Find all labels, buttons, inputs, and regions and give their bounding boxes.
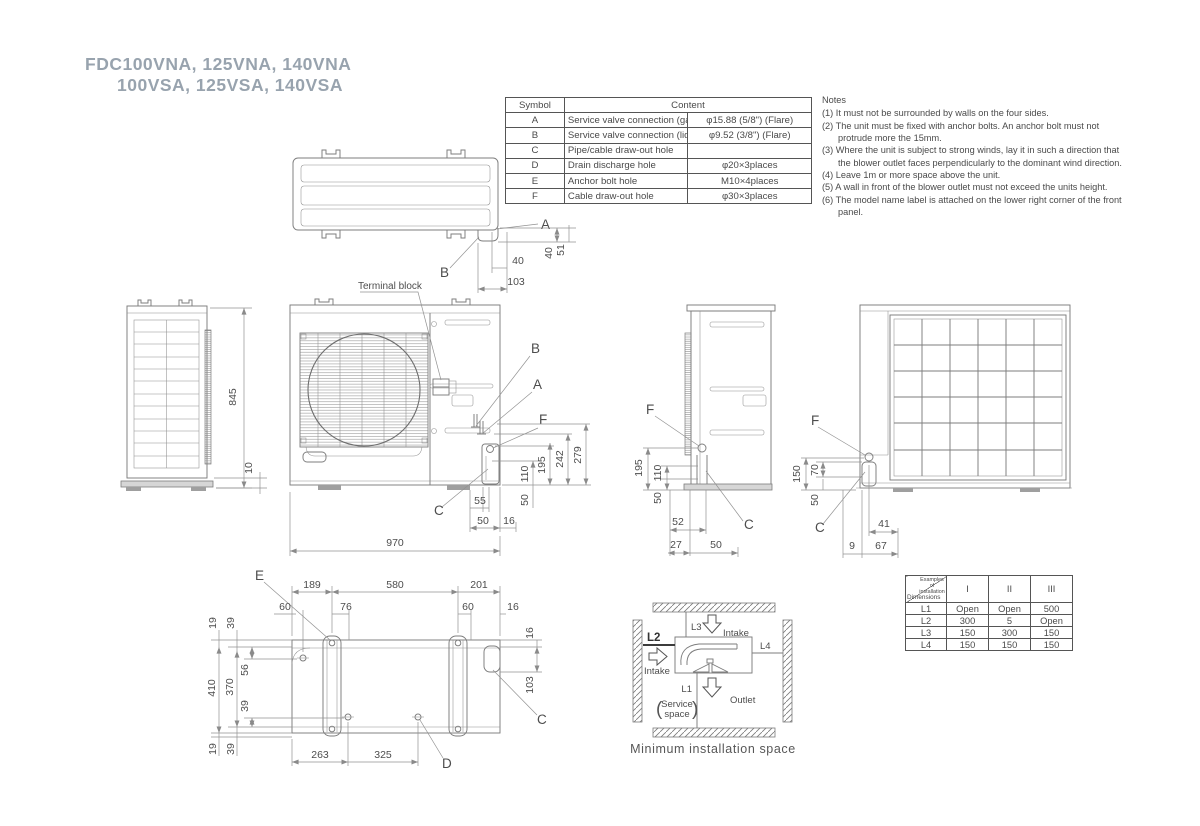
- table-row: A Service valve connection (gas side) φ1…: [506, 113, 812, 128]
- part-mark-b: B: [531, 341, 540, 356]
- l1-label: L1: [681, 684, 692, 695]
- dim-label: 195: [633, 459, 645, 477]
- installation-caption: Minimum installation space: [624, 742, 802, 756]
- table-row: Symbol Content: [506, 98, 812, 113]
- dim-label: 51: [555, 244, 567, 256]
- dim-label: 189: [303, 579, 321, 591]
- dim-label: 19: [207, 617, 219, 629]
- dim-label: 103: [524, 676, 536, 694]
- l4-label: L4: [760, 641, 771, 652]
- notes-title: Notes: [822, 94, 1122, 106]
- dim-label: 50: [809, 494, 821, 506]
- dim-label: 16: [507, 601, 519, 613]
- table-row: C Pipe/cable draw-out hole: [506, 143, 812, 158]
- dim-label: 40: [512, 255, 524, 267]
- dim-label: 27: [670, 539, 682, 551]
- dim-label: 52: [672, 516, 684, 528]
- dim-label: 16: [524, 627, 536, 639]
- dim-label: 10: [243, 462, 255, 474]
- part-mark-f: F: [539, 412, 547, 427]
- part-mark-f: F: [811, 413, 819, 428]
- model-title-line1: FDC100VNA, 125VNA, 140VNA: [85, 54, 351, 75]
- front-view: Terminal block B A F C 110 195 242 279 5…: [290, 281, 591, 556]
- dim-label: 103: [507, 276, 525, 288]
- installation-table: Examples of installation Dimensions I II…: [905, 575, 1073, 651]
- table-row: L1 Open Open 500: [906, 603, 1073, 615]
- dim-label: 39: [225, 743, 237, 755]
- model-title-line2: 100VSA, 125VSA, 140VSA: [85, 75, 351, 96]
- dim-label: 150: [791, 465, 803, 483]
- table-row: E Anchor bolt hole M10×4places: [506, 173, 812, 188]
- part-mark-c: C: [434, 503, 444, 518]
- installation-space-diagram: L2 L3 L4 L1 Intake Intake Outlet ( Servi…: [633, 603, 792, 737]
- l3-label: L3: [691, 622, 702, 633]
- dim-label: 242: [554, 450, 566, 468]
- symbol-header: Symbol: [506, 98, 565, 113]
- dim-label: 410: [206, 679, 218, 697]
- part-mark-a: A: [533, 377, 542, 392]
- dim-label: 39: [239, 700, 251, 712]
- dim-label: 41: [878, 518, 890, 530]
- corner-bottom-label: Dimensions: [907, 594, 940, 601]
- bottom-view: E D C 189 580 201 60 76 60 16 19 39 410 …: [206, 568, 547, 771]
- dim-label: 39: [225, 617, 237, 629]
- dim-label: 580: [386, 579, 404, 591]
- content-header: Content: [564, 98, 811, 113]
- dim-label: 9: [849, 540, 855, 552]
- dim-label: 50: [710, 539, 722, 551]
- note-item: (4) Leave 1m or more space above the uni…: [822, 169, 1122, 181]
- part-mark-c: C: [744, 517, 754, 532]
- table-row: L3 150 300 150: [906, 627, 1073, 639]
- part-mark-c: C: [537, 712, 547, 727]
- dim-label: 370: [224, 678, 236, 696]
- service-space-label: space: [664, 709, 689, 720]
- dim-label: 195: [536, 456, 548, 474]
- note-item: (1) It must not be surrounded by walls o…: [822, 107, 1122, 119]
- table-row: D Drain discharge hole φ20×3places: [506, 158, 812, 173]
- note-item: (3) Where the unit is subject to strong …: [822, 144, 1122, 169]
- dim-label: 60: [279, 601, 291, 613]
- service-paren-close: ): [692, 699, 698, 720]
- column-header: III: [1031, 576, 1073, 603]
- rear-view: F C 150 70 50 41 9 67: [791, 305, 1072, 558]
- dim-label: 325: [374, 749, 392, 761]
- part-mark-c: C: [815, 520, 825, 535]
- dim-label: 50: [652, 492, 664, 504]
- dim-label: 76: [340, 601, 352, 613]
- column-header: II: [989, 576, 1031, 603]
- dim-label: 970: [386, 537, 404, 549]
- terminal-block-label: Terminal block: [358, 281, 423, 292]
- l2-label: L2: [647, 632, 660, 644]
- table-row: L2 300 5 Open: [906, 615, 1073, 627]
- table-row: F Cable draw-out hole φ30×3places: [506, 189, 812, 204]
- dim-label: 67: [875, 540, 887, 552]
- drawing-page: A B 40 103 40 51 845 10: [0, 0, 1200, 826]
- corner-cell: Examples of installation Dimensions: [906, 576, 947, 603]
- dim-label: 845: [227, 388, 239, 406]
- notes-block: Notes (1) It must not be surrounded by w…: [822, 94, 1122, 218]
- right-side-view: F C 195 110 50 52 27 50: [633, 305, 775, 557]
- part-mark-e: E: [255, 568, 264, 583]
- part-mark-f: F: [646, 402, 654, 417]
- table-row: L4 150 150 150: [906, 639, 1073, 651]
- dim-label: 56: [239, 664, 251, 676]
- outlet-label: Outlet: [730, 695, 756, 706]
- dim-label: 16: [503, 515, 515, 527]
- part-mark-b: B: [440, 265, 449, 280]
- left-side-view: 845 10: [121, 300, 267, 494]
- note-item: (5) A wall in front of the blower outlet…: [822, 181, 1122, 193]
- dim-label: 279: [572, 446, 584, 464]
- part-mark-a: A: [541, 217, 550, 232]
- corner-top-label: Examples of installation: [919, 577, 945, 596]
- dim-label: 201: [470, 579, 488, 591]
- dim-label: 55: [474, 495, 486, 507]
- table-row: Examples of installation Dimensions I II…: [906, 576, 1073, 603]
- model-title: FDC100VNA, 125VNA, 140VNA 100VSA, 125VSA…: [85, 54, 351, 96]
- intake-top-label: Intake: [723, 628, 749, 639]
- dim-label: 70: [809, 464, 821, 476]
- intake-left-label: Intake: [644, 666, 670, 677]
- dim-label: 50: [519, 494, 531, 506]
- table-row: B Service valve connection (liquid side)…: [506, 128, 812, 143]
- note-item: (6) The model name label is attached on …: [822, 194, 1122, 219]
- dim-label: 40: [543, 247, 555, 259]
- part-mark-d: D: [442, 756, 452, 771]
- symbol-table: Symbol Content A Service valve connectio…: [505, 97, 812, 204]
- dim-label: 50: [477, 515, 489, 527]
- dim-label: 110: [652, 464, 664, 481]
- dim-label: 19: [207, 743, 219, 755]
- note-item: (2) The unit must be fixed with anchor b…: [822, 120, 1122, 145]
- dim-label: 110: [519, 465, 531, 482]
- column-header: I: [947, 576, 989, 603]
- dim-label: 263: [311, 749, 329, 761]
- dim-label: 60: [462, 601, 474, 613]
